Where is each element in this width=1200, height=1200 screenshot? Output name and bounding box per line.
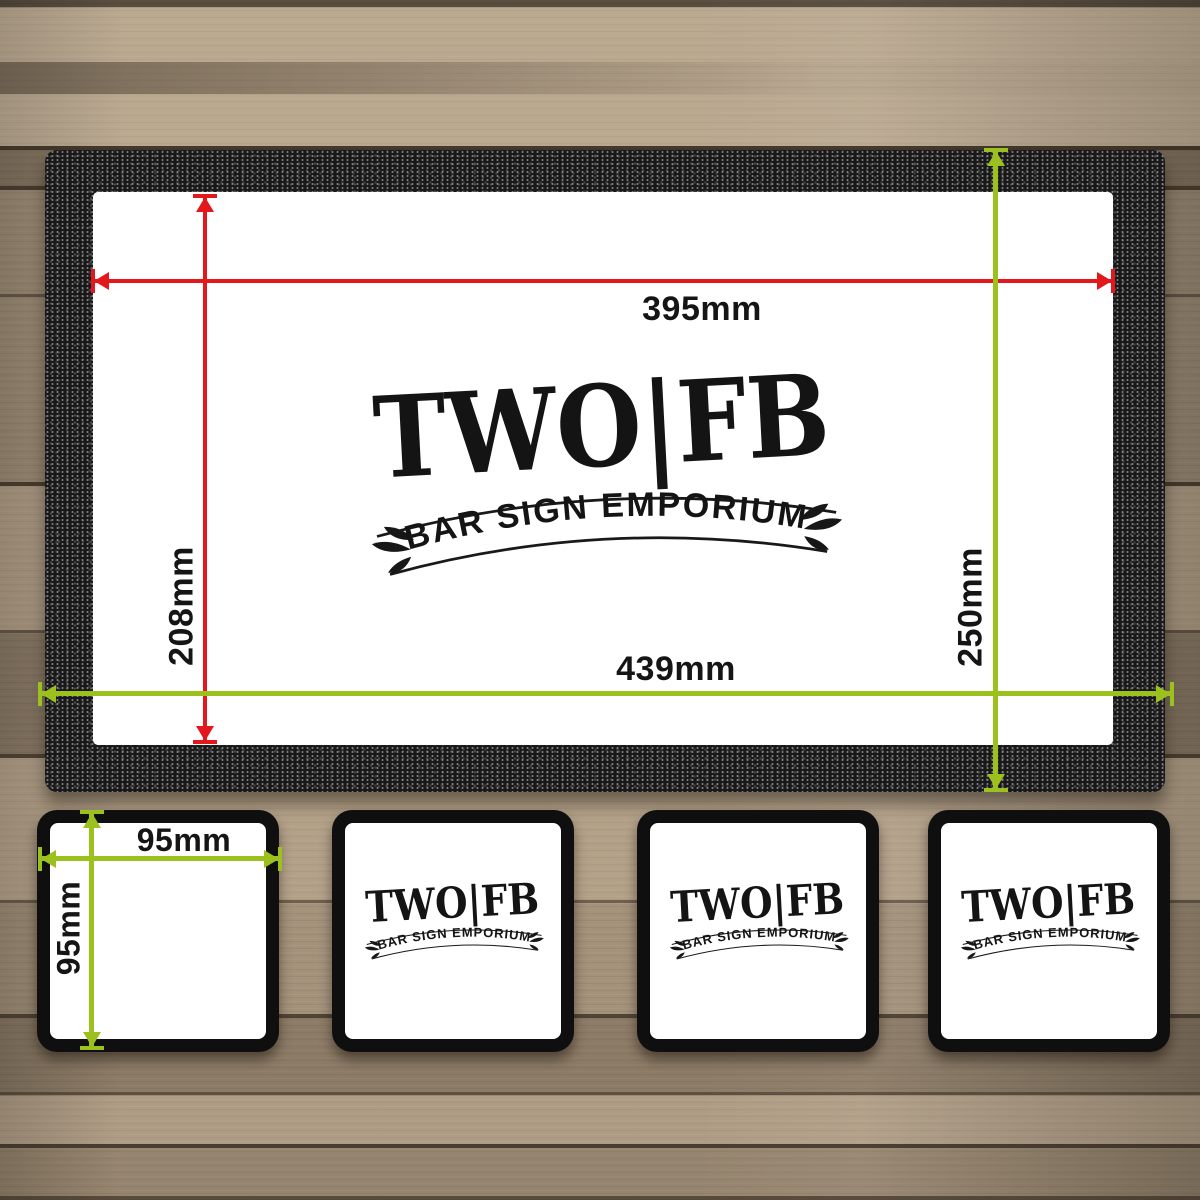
dim-label-print-height: 208mm bbox=[163, 546, 202, 666]
arrow-head-icon bbox=[987, 774, 1005, 789]
arrow-head-icon bbox=[41, 685, 56, 703]
dim-label-mat-width: 439mm bbox=[616, 650, 736, 689]
arrow-head-icon bbox=[41, 850, 56, 868]
coaster-logo-1: TWO|FBBAR SIGN EMPORIUM bbox=[332, 810, 574, 1052]
arrow-cap bbox=[1111, 269, 1115, 293]
dim-arrow-coaster-height bbox=[89, 812, 94, 1048]
arrow-head-icon bbox=[196, 197, 214, 212]
twofb-logo-slot: TWO|FBBAR SIGN EMPORIUM bbox=[658, 872, 858, 963]
coaster-print-area: TWO|FBBAR SIGN EMPORIUM bbox=[650, 823, 866, 1039]
coaster-logo-2: TWO|FBBAR SIGN EMPORIUM bbox=[637, 810, 879, 1052]
twofb-logo: TWO|FBBAR SIGN EMPORIUM bbox=[340, 345, 865, 585]
arrow-cap bbox=[1170, 682, 1174, 706]
arrow-cap bbox=[193, 740, 217, 744]
dim-label-print-width: 395mm bbox=[642, 290, 762, 329]
product-dimension-diagram: TWO|FBBAR SIGN EMPORIUM TWO|FBBAR SIGN E… bbox=[0, 0, 1200, 1200]
dim-arrow-print-width bbox=[93, 279, 1113, 283]
dim-arrow-mat-width bbox=[40, 691, 1172, 696]
arrow-head-icon bbox=[83, 813, 101, 828]
arrow-head-icon bbox=[196, 726, 214, 741]
arrow-head-icon bbox=[83, 1032, 101, 1047]
arrow-head-icon bbox=[1156, 685, 1171, 703]
twofb-logo-slot: TWO|FBBAR SIGN EMPORIUM bbox=[340, 345, 865, 585]
arrow-head-icon bbox=[264, 850, 279, 868]
twofb-logo: TWO|FBBAR SIGN EMPORIUM bbox=[658, 872, 858, 963]
dim-arrow-print-height bbox=[203, 196, 207, 742]
coaster-print-area: TWO|FBBAR SIGN EMPORIUM bbox=[345, 823, 561, 1039]
logo-title: TWO|FB bbox=[960, 874, 1136, 933]
arrow-head-icon bbox=[987, 151, 1005, 166]
arrow-cap bbox=[80, 1046, 104, 1050]
twofb-logo: TWO|FBBAR SIGN EMPORIUM bbox=[949, 872, 1149, 963]
twofb-logo: TWO|FBBAR SIGN EMPORIUM bbox=[353, 872, 553, 963]
logo-title: TWO|FB bbox=[370, 350, 832, 505]
dim-label-coaster-height: 95mm bbox=[51, 881, 88, 976]
dim-label-coaster-width: 95mm bbox=[137, 822, 232, 859]
arrow-cap bbox=[984, 788, 1008, 792]
dim-label-mat-height: 250mm bbox=[952, 547, 991, 667]
arrow-head-icon bbox=[94, 272, 109, 290]
arrow-cap bbox=[278, 847, 282, 871]
twofb-logo-slot: TWO|FBBAR SIGN EMPORIUM bbox=[949, 872, 1149, 963]
twofb-logo-slot: TWO|FBBAR SIGN EMPORIUM bbox=[353, 872, 553, 963]
logo-title: TWO|FB bbox=[669, 874, 845, 933]
coaster-print-area: TWO|FBBAR SIGN EMPORIUM bbox=[941, 823, 1157, 1039]
dim-arrow-mat-height bbox=[993, 150, 998, 790]
arrow-head-icon bbox=[1097, 272, 1112, 290]
logo-title: TWO|FB bbox=[364, 874, 540, 933]
coaster-logo-3: TWO|FBBAR SIGN EMPORIUM bbox=[928, 810, 1170, 1052]
